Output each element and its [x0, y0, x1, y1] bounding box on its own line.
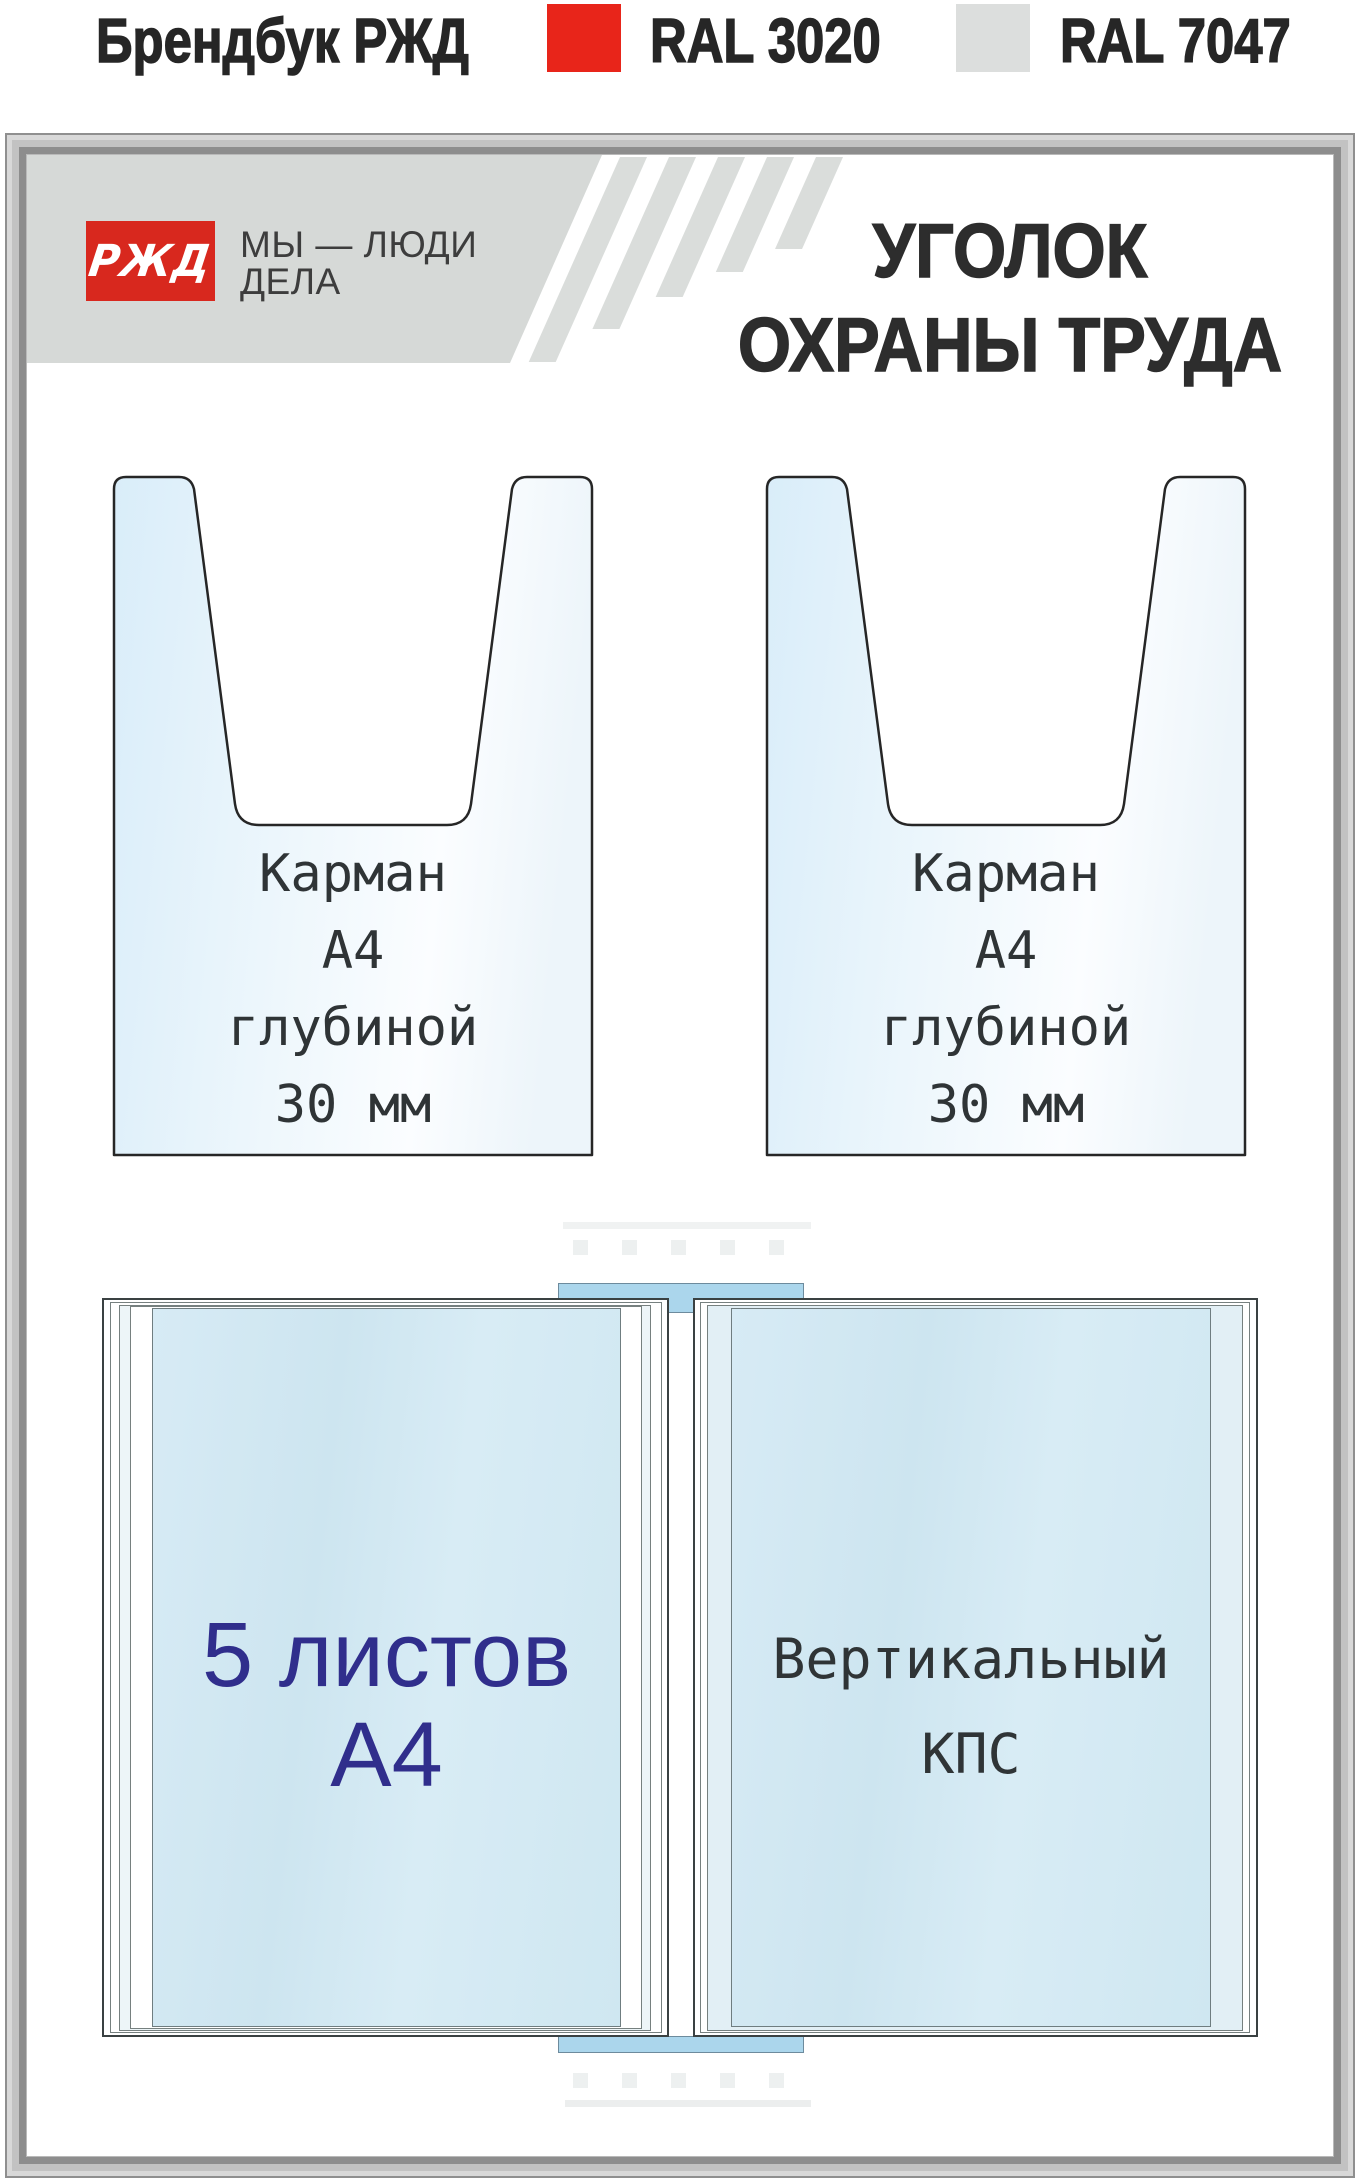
watermark	[563, 1222, 811, 1229]
pocket-left-caption: Карман А4 глубиной 30 мм	[111, 836, 595, 1144]
rzd-logo-monogram: РЖД	[86, 236, 215, 287]
pocket-caption-line: Карман	[111, 836, 595, 913]
tagline-line2: ДЕЛА	[240, 263, 477, 300]
pocket-caption-line: А4	[764, 913, 1248, 990]
flip-right-caption-line2: КПС	[731, 1707, 1211, 1802]
watermark	[671, 1240, 686, 1255]
rzd-logo: РЖД	[86, 221, 215, 301]
board-title-line2: ОХРАНЫ ТРУДА	[731, 299, 1289, 393]
board-title-line1: УГОЛОК	[731, 205, 1289, 299]
tagline-line1: МЫ — ЛЮДИ	[240, 226, 477, 263]
watermark	[573, 2073, 588, 2088]
rzd-tagline: МЫ — ЛЮДИ ДЕЛА	[240, 226, 477, 300]
flip-right-caption-line1: Вертикальный	[731, 1612, 1211, 1707]
brandbook-header: Брендбук РЖД RAL 3020 RAL 7047	[0, 0, 1361, 90]
watermark	[671, 2073, 686, 2088]
watermark	[622, 2073, 637, 2088]
brandbook-title: Брендбук РЖД	[96, 6, 469, 77]
pocket-caption-line: 30 мм	[111, 1067, 595, 1144]
watermark	[769, 1240, 784, 1255]
watermark	[565, 2100, 811, 2107]
board-title: УГОЛОК ОХРАНЫ ТРУДА	[731, 205, 1289, 393]
pocket-caption-line: А4	[111, 913, 595, 990]
pocket-caption-line: 30 мм	[764, 1067, 1248, 1144]
ral-3020-label: RAL 3020	[650, 6, 881, 77]
pocket-right-caption: Карман А4 глубиной 30 мм	[764, 836, 1248, 1144]
pocket-caption-line: Карман	[764, 836, 1248, 913]
flip-pivot-tab-bottom	[558, 2036, 804, 2053]
watermark	[622, 1240, 637, 1255]
flip-left-caption-line2: А4	[152, 1705, 621, 1805]
watermark	[720, 2073, 735, 2088]
ral-3020-swatch	[547, 4, 621, 72]
ral-7047-label: RAL 7047	[1060, 6, 1291, 77]
flip-right-caption: Вертикальный КПС	[731, 1612, 1211, 1802]
watermark	[573, 1240, 588, 1255]
flip-left-caption: 5 листов А4	[152, 1605, 621, 1805]
ral-7047-swatch	[956, 4, 1030, 72]
pocket-caption-line: глубиной	[764, 990, 1248, 1067]
pocket-caption-line: глубиной	[111, 990, 595, 1067]
flip-left-caption-line1: 5 листов	[152, 1605, 621, 1705]
watermark	[769, 2073, 784, 2088]
watermark	[720, 1240, 735, 1255]
